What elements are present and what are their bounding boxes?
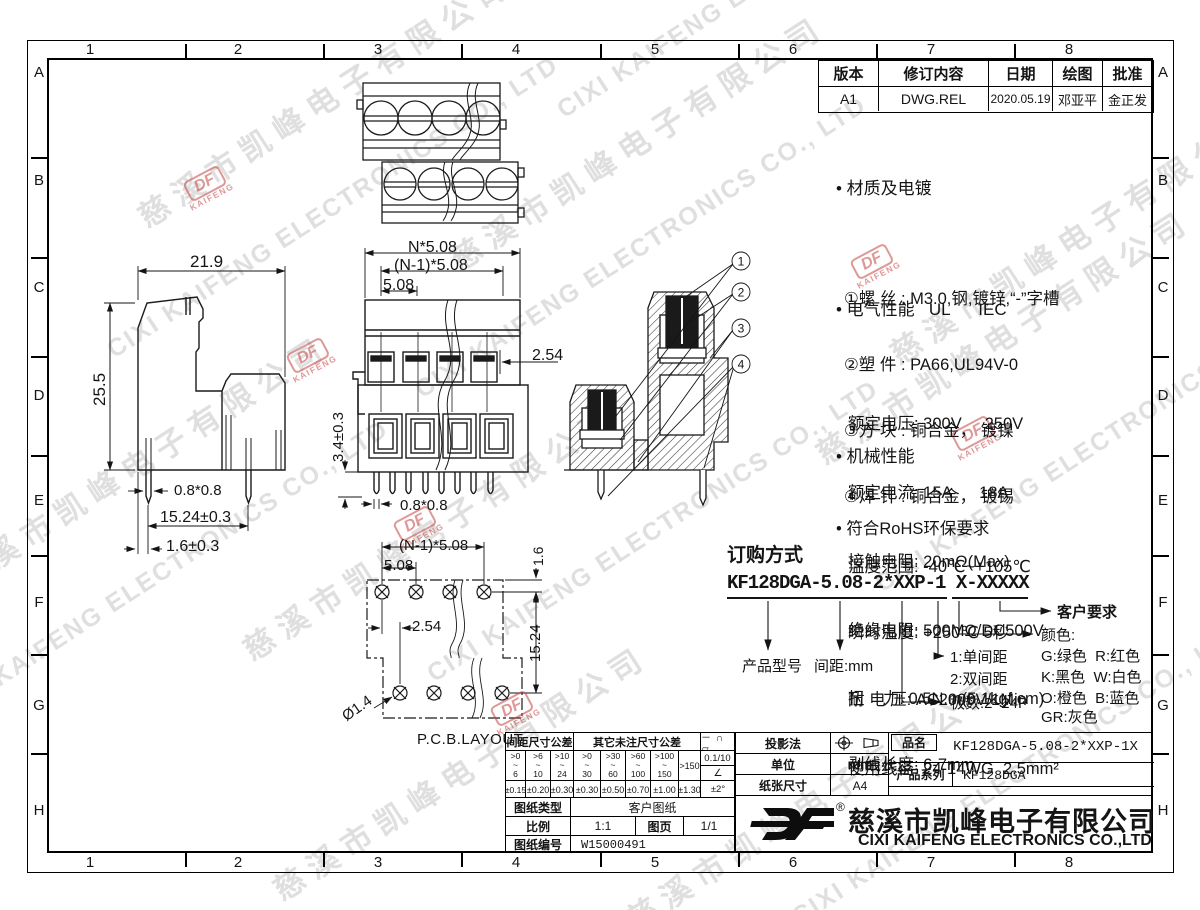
material-title: • 材质及电镀 — [836, 178, 1060, 200]
zone-row: F — [1152, 594, 1174, 610]
series-label: 产品系列 — [889, 763, 953, 786]
zone-row: A — [28, 64, 50, 80]
flatness-tolerance: 0.1/10 — [701, 751, 735, 766]
sheet-label: 图页 — [636, 817, 684, 836]
tolerance-range: >6~10 — [526, 751, 551, 781]
electrical-title: • 电气性能 UL IEC — [836, 298, 1059, 321]
revision-cell: DWG.REL — [879, 87, 989, 111]
drawing-sheet: 慈溪市凯峰电子有限公司 CIXI KAIFENG ELECTRONICS CO.… — [0, 0, 1200, 910]
zone-row: C — [28, 279, 50, 295]
paper-size-value: A4 — [831, 775, 889, 796]
ordering-color-line: K:黑色 W:白色 — [1041, 669, 1142, 686]
dim-pcb-pitch: 5.08 — [384, 557, 413, 574]
geometry-symbols: － ∩ ▱ — [701, 733, 735, 751]
zone-row: H — [28, 802, 50, 818]
dim-front-pinlen: 3.4±0.3 — [330, 412, 347, 462]
projection-symbol-icon — [831, 733, 889, 754]
zone-col: 3 — [367, 41, 389, 57]
revision-header: 修订内容 — [879, 61, 989, 87]
projection-table: 投影法 单位 mm 纸张尺寸 A4 — [735, 732, 888, 795]
revision-cell: 金正发 — [1103, 87, 1152, 111]
ordering-color-line: G:绿色 R:红色 — [1041, 648, 1140, 665]
doc-no-value: W15000491 — [571, 836, 734, 853]
zone-col: 5 — [644, 854, 666, 870]
dim-front-offset: 2.54 — [532, 347, 563, 365]
tolerance-value: ±0.30 — [574, 781, 601, 798]
angle-symbol: ∠ — [701, 766, 735, 781]
zone-row: G — [1152, 697, 1174, 713]
tolerance-range: >10~24 — [551, 751, 574, 781]
registered-mark: ® — [836, 800, 845, 814]
tolerance-value: ±0.50 — [601, 781, 626, 798]
product-name-area: 品名 KF128DGA-5.08-2*XXP-1X 产品系列 KF128DGA — [888, 732, 1153, 795]
ordering-title: 订购方式 — [727, 545, 803, 567]
product-name-value: KF128DGA-5.08-2*XXP-1X — [939, 739, 1152, 755]
tolerance-range: >0~30 — [574, 751, 601, 781]
zone-col: 1 — [79, 41, 101, 57]
revision-cell: 邓亚平 — [1053, 87, 1103, 111]
revision-header: 版本 — [819, 61, 879, 87]
revision-header: 日期 — [989, 61, 1053, 87]
tolerance-range: >60~100 — [626, 751, 651, 781]
tolerance-value: ±0.30 — [551, 781, 574, 798]
zone-col: 6 — [782, 41, 804, 57]
revision-cell: 2020.05.19 — [989, 87, 1053, 111]
dim-pcb-edge: 1.6 — [530, 547, 546, 566]
ordering-color-line: O:橙色 B:蓝色 — [1041, 690, 1139, 707]
rohs-note: • 符合RoHS环保要求 — [836, 518, 989, 540]
dim-front-pin: 0.8*0.8 — [400, 497, 448, 514]
revision-header: 批准 — [1103, 61, 1152, 87]
dim-side-pitch: 15.24±0.3 — [160, 509, 231, 527]
note-line: 瞬时温度: +250℃ 5秒 — [848, 622, 1044, 644]
part-number-underline — [952, 597, 1028, 599]
zone-col: 3 — [367, 854, 389, 870]
zone-row: D — [28, 387, 50, 403]
dim-front-total: N*5.08 — [408, 239, 457, 257]
dim-side-pin: 0.8*0.8 — [174, 482, 222, 499]
ordering-color-line: GR:灰色 — [1041, 709, 1098, 726]
unit-label: 单位 — [736, 754, 831, 775]
zone-row: E — [1152, 492, 1174, 508]
zone-row: A — [1152, 64, 1174, 80]
company-logo-icon — [748, 804, 834, 853]
zone-row: B — [28, 172, 50, 188]
zone-col: 8 — [1058, 854, 1080, 870]
product-name-label: 品名 — [891, 734, 937, 751]
zone-col: 4 — [505, 41, 527, 57]
zone-row: D — [1152, 387, 1174, 403]
tolerance-range: >0~6 — [506, 751, 526, 781]
tolerance-range: >30~60 — [601, 751, 626, 781]
zone-col: 2 — [227, 854, 249, 870]
zone-row: C — [1152, 279, 1174, 295]
tolerance-value: ±0.20 — [526, 781, 551, 798]
scale-value: 1:1 — [571, 817, 636, 836]
dim-side-height: 25.5 — [90, 373, 110, 406]
series-value: KF128DGA — [963, 768, 1025, 783]
paper-size-label: 纸张尺寸 — [736, 775, 831, 796]
revision-cell: A1 — [819, 87, 879, 111]
tolerance-value: ±1.30 — [679, 781, 701, 798]
zone-col: 5 — [644, 41, 666, 57]
ordering-double-label: 2:双间距 — [950, 671, 1008, 688]
dim-side-width: 21.9 — [190, 252, 223, 272]
unit-value: mm — [831, 754, 889, 775]
zone-col: 6 — [782, 854, 804, 870]
zone-row: F — [28, 594, 50, 610]
tolerance-other-header: 其它未注尺寸公差 — [574, 733, 701, 751]
ordering-single-label: 1:单间距 — [950, 649, 1008, 666]
tolerance-value: ±0.15 — [506, 781, 526, 798]
doc-no-label: 图纸编号 — [506, 836, 571, 853]
zone-col: 7 — [920, 41, 942, 57]
doc-type-value: 客户图纸 — [571, 798, 734, 817]
dim-pcb-offset: 2.54 — [412, 618, 441, 635]
ordering-color-title: 颜色: — [1041, 627, 1075, 644]
angle-tolerance-value: ±2° — [701, 781, 735, 798]
tolerance-value: ±1.00 — [651, 781, 679, 798]
part-number-underline — [727, 597, 947, 599]
tolerance-table: 间距尺寸公差 其它未注尺寸公差 － ∩ ▱ >0~6 >6~10 >10~24 … — [505, 732, 735, 797]
dim-front-pitch: 5.08 — [383, 277, 414, 295]
ordering-customer-label: 客户要求 — [1057, 604, 1117, 621]
projection-label: 投影法 — [736, 733, 831, 754]
company-block: ® 慈溪市凯峰电子有限公司 CIXI KAIFENG ELECTRONICS C… — [735, 795, 1153, 853]
doc-type-label: 图纸类型 — [506, 798, 571, 817]
tolerance-range-last: >150 — [679, 751, 701, 781]
zone-col: 4 — [505, 854, 527, 870]
ordering-part-number: KF128DGA-5.08-2*XXP-1 X-XXXXX — [727, 572, 1029, 594]
ordering-model-label: 产品型号 — [742, 658, 802, 675]
revision-header: 绘图 — [1053, 61, 1103, 87]
sheet-value: 1/1 — [684, 817, 734, 836]
dim-side-edge: 1.6±0.3 — [166, 538, 219, 556]
zone-col: 2 — [227, 41, 249, 57]
company-name-en: CIXI KAIFENG ELECTRONICS CO.,LTD — [858, 832, 1152, 850]
revision-table: 版本 修订内容 日期 绘图 批准 A1 DWG.REL 2020.05.19 邓… — [818, 60, 1154, 113]
zone-row: G — [28, 697, 50, 713]
tolerance-pitch-header: 间距尺寸公差 — [506, 733, 574, 751]
tolerance-range: >100~150 — [651, 751, 679, 781]
mechanical-title: • 机械性能 — [836, 446, 1044, 468]
dim-pcb-span: (N-1)*5.08 — [399, 537, 468, 554]
zone-col: 8 — [1058, 41, 1080, 57]
doc-info-table: 图纸类型 客户图纸 比例 1:1 图页 1/1 图纸编号 W15000491 — [505, 797, 735, 853]
ordering-poles-label: 极数:2~24P — [950, 695, 1028, 712]
dim-pcb-row: 15.24 — [527, 624, 544, 662]
tolerance-value: ±0.70 — [626, 781, 651, 798]
ordering-pitch-label: 间距:mm — [814, 658, 873, 675]
zone-col: 1 — [79, 854, 101, 870]
dim-front-span: (N-1)*5.08 — [394, 257, 468, 275]
scale-label: 比例 — [506, 817, 571, 836]
zone-row: B — [1152, 172, 1174, 188]
zone-row: E — [28, 492, 50, 508]
